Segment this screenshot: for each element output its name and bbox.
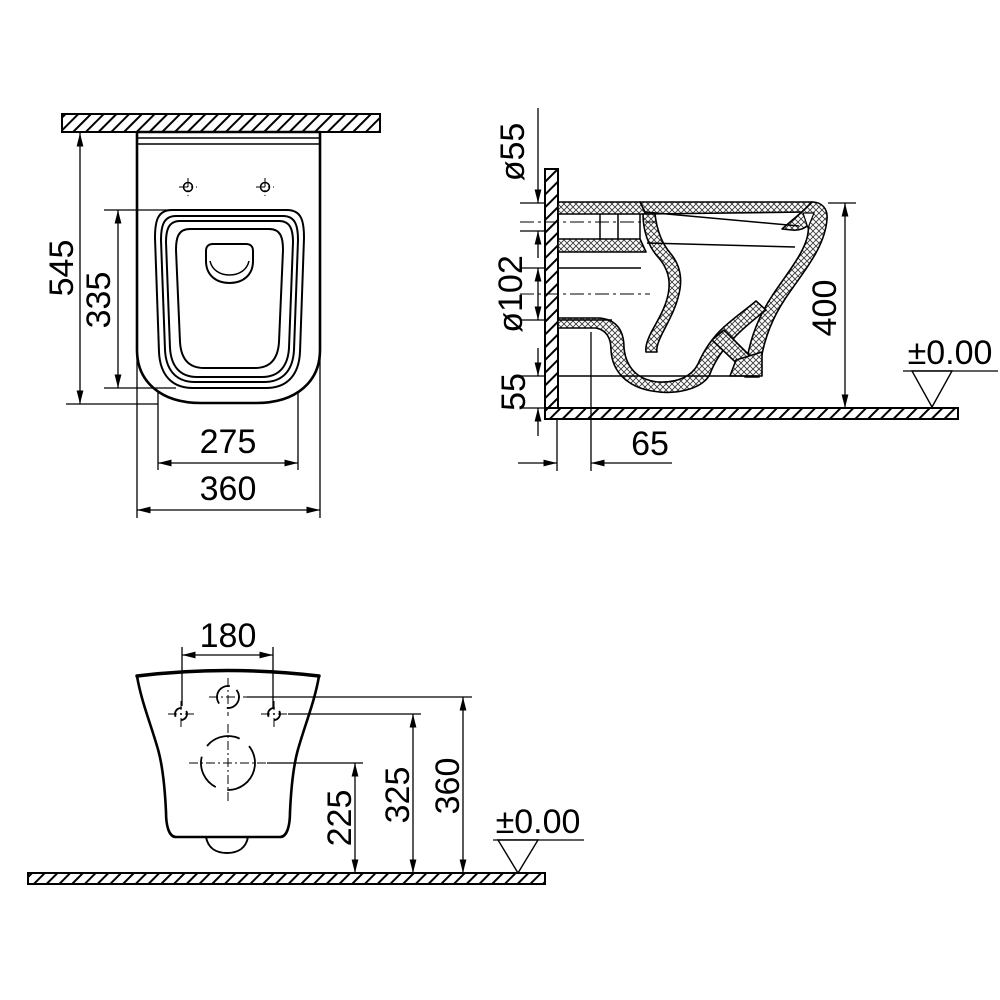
arrowhead	[352, 860, 359, 874]
dim-outlet-distance-label: 65	[631, 425, 669, 463]
technical-drawing: 545 335 275 360	[0, 0, 1000, 1000]
datum-level-icon	[498, 840, 538, 873]
dim-hole-spacing-label: 180	[200, 617, 257, 655]
dim-outlet-height-label: 225	[321, 790, 359, 847]
arrowhead	[544, 460, 558, 467]
dim-total-depth-label: 545	[43, 240, 81, 297]
arrowhead	[535, 408, 542, 422]
dim-outlet-diameter-label: ø102	[492, 255, 530, 333]
dim-inlet-height-label: 360	[429, 758, 467, 815]
dim-fixing-height-label: 325	[379, 767, 417, 824]
arrowhead	[535, 363, 542, 377]
arrowhead	[535, 231, 542, 245]
arrowhead	[460, 697, 467, 711]
seat-ring	[161, 216, 298, 382]
arrowhead	[842, 395, 849, 409]
floor-section-hatch	[28, 873, 545, 884]
wall-section-hatch	[545, 169, 558, 408]
arrowhead	[115, 210, 122, 224]
arrowhead	[285, 460, 299, 467]
datum-level-icon	[912, 371, 952, 407]
arrowhead	[77, 133, 84, 147]
arrowhead	[352, 763, 359, 777]
arrowhead	[535, 190, 542, 204]
drawing-canvas: 545 335 275 360	[0, 0, 1000, 1000]
floor-section-hatch	[545, 408, 958, 419]
arrowhead	[158, 460, 172, 467]
arrowhead	[307, 507, 321, 514]
arrowhead	[591, 460, 605, 467]
arrowhead	[115, 375, 122, 389]
outlet-boss	[206, 837, 248, 853]
arrowhead	[137, 507, 151, 514]
dim-inner-width-label: 275	[200, 423, 257, 461]
inlet-spud-top-wall	[558, 202, 646, 214]
rear-view: 180 225 325 360 ±0.00	[28, 617, 584, 884]
arrowhead	[842, 203, 849, 217]
flush-inlet-arc	[210, 261, 249, 275]
arrowhead	[182, 652, 196, 659]
dim-rim-height-label: 400	[806, 280, 844, 337]
dim-inlet-diameter-label: ø55	[494, 123, 532, 182]
bowl-rim-line	[647, 243, 795, 247]
inlet-spud-bottom-wall	[558, 239, 646, 252]
wall-section-hatch	[62, 114, 380, 132]
bowl-inner-wall	[643, 214, 681, 352]
plan-view: 545 335 275 360	[43, 114, 380, 518]
bowl-opening	[176, 229, 283, 368]
arrowhead	[260, 652, 274, 659]
arrowhead	[535, 307, 542, 321]
dim-total-width-label: 360	[200, 470, 257, 508]
rear-top-edge	[137, 671, 319, 677]
side-view: ø55 ø102 55 65 400 ±0.00	[492, 108, 998, 471]
datum-level-label: ±0.00	[908, 334, 993, 372]
dim-under-clearance-label: 55	[495, 373, 533, 411]
flush-inlet-spot	[206, 244, 253, 283]
datum-level-label: ±0.00	[496, 803, 581, 841]
arrowhead	[535, 268, 542, 282]
dim-inner-depth-label: 335	[80, 272, 118, 329]
arrowhead	[77, 391, 84, 405]
arrowhead	[410, 860, 417, 874]
seat-surface-line	[645, 212, 799, 226]
arrowhead	[460, 860, 467, 874]
arrowhead	[410, 714, 417, 728]
